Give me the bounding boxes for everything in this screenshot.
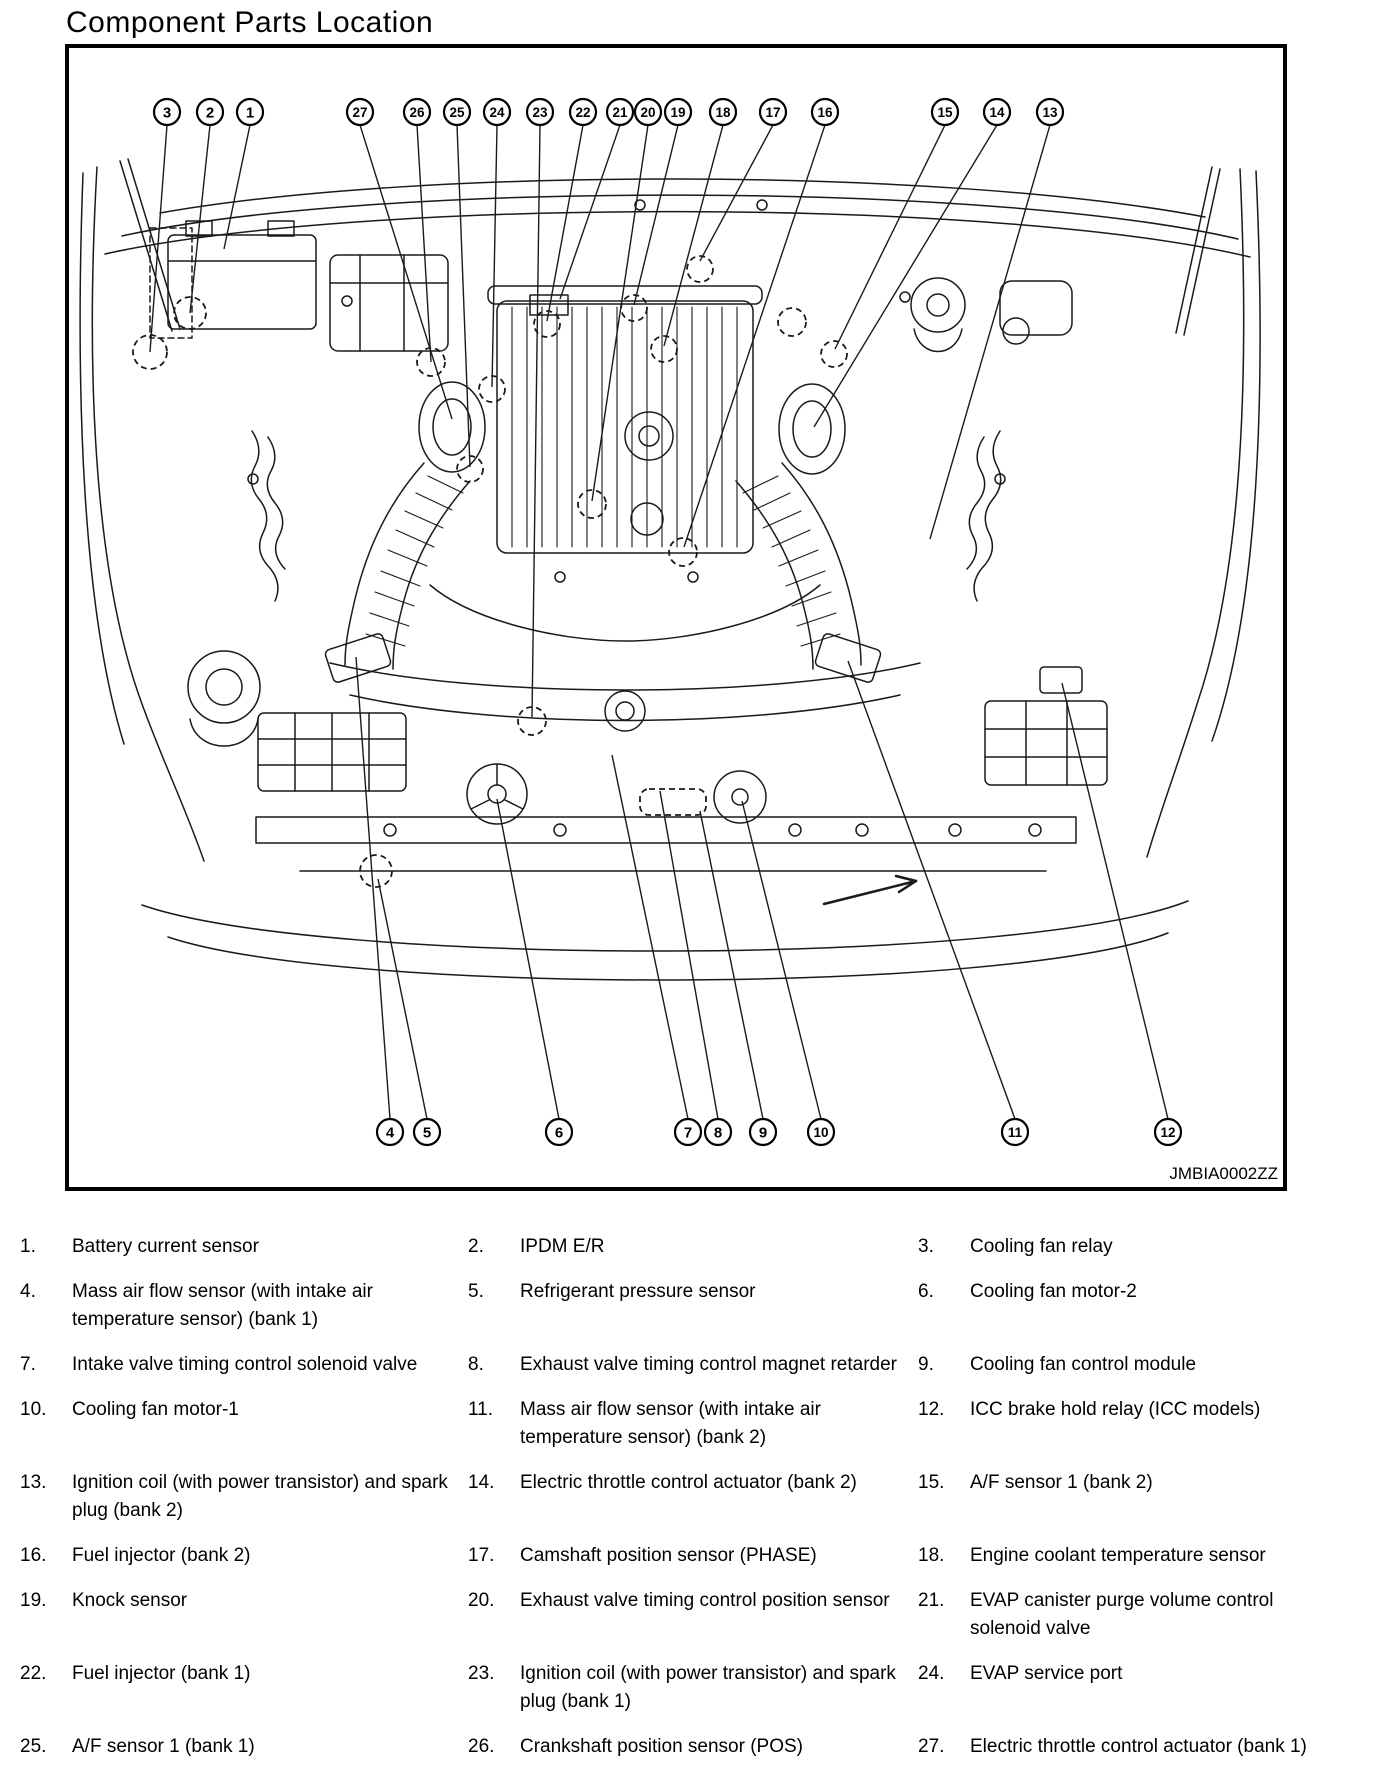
callout-9: 9 — [750, 1119, 776, 1145]
leader-line-1 — [224, 125, 250, 249]
callout-21: 21 — [607, 99, 633, 125]
legend-item-number: 1. — [20, 1233, 72, 1261]
svg-text:1: 1 — [246, 104, 254, 121]
legend-item-1: 1.Battery current sensor — [20, 1233, 468, 1261]
legend-item-label: Crankshaft position sensor (POS) — [520, 1733, 904, 1761]
leader-line-25 — [457, 125, 470, 467]
callout-1: 1 — [237, 99, 263, 125]
legend-item-22: 22.Fuel injector (bank 1) — [20, 1660, 468, 1716]
callout-20: 20 — [635, 99, 661, 125]
legend-item-number: 15. — [918, 1469, 970, 1497]
svg-text:20: 20 — [640, 105, 655, 120]
callout-27: 27 — [347, 99, 373, 125]
legend-item-14: 14.Electric throttle control actuator (b… — [468, 1469, 918, 1525]
legend-item-number: 9. — [918, 1351, 970, 1379]
callout-8: 8 — [705, 1119, 731, 1145]
legend-item-label: Refrigerant pressure sensor — [520, 1278, 904, 1306]
callout-15: 15 — [932, 99, 958, 125]
svg-text:9: 9 — [759, 1124, 767, 1141]
callout-19: 19 — [665, 99, 691, 125]
figure-code: JMBIA0002ZZ — [1169, 1164, 1278, 1183]
legend-item-number: 6. — [918, 1278, 970, 1306]
leader-line-16 — [684, 125, 825, 547]
svg-text:3: 3 — [163, 104, 171, 121]
svg-text:13: 13 — [1042, 105, 1058, 120]
svg-text:15: 15 — [937, 105, 953, 120]
legend-item-2: 2.IPDM E/R — [468, 1233, 918, 1261]
legend-item-number: 8. — [468, 1351, 520, 1379]
legend-item-number: 26. — [468, 1733, 520, 1761]
legend-item-number: 27. — [918, 1733, 970, 1761]
legend-item-16: 16.Fuel injector (bank 2) — [20, 1542, 468, 1570]
legend-item-18: 18.Engine coolant temperature sensor — [918, 1542, 1356, 1570]
engine-bay-diagram: 3212726252423222120191817161514134567891… — [65, 44, 1287, 1191]
svg-text:23: 23 — [532, 105, 548, 120]
callout-18: 18 — [710, 99, 736, 125]
callout-markers: 3212726252423222120191817161514134567891… — [154, 99, 1181, 1145]
callout-6: 6 — [546, 1119, 572, 1145]
legend-item-label: IPDM E/R — [520, 1233, 904, 1261]
legend-item-label: Cooling fan motor-1 — [72, 1396, 454, 1424]
legend-item-23: 23.Ignition coil (with power transistor)… — [468, 1660, 918, 1716]
callout-7: 7 — [675, 1119, 701, 1145]
legend-item-number: 25. — [20, 1733, 72, 1761]
leader-line-2 — [190, 125, 210, 313]
legend-item-label: Ignition coil (with power transistor) an… — [72, 1469, 454, 1525]
svg-text:25: 25 — [449, 105, 465, 120]
svg-text:8: 8 — [714, 1124, 722, 1141]
callout-11: 11 — [1002, 1119, 1028, 1145]
legend-item-21: 21.EVAP canister purge volume control so… — [918, 1587, 1356, 1643]
leader-line-26 — [417, 125, 431, 362]
callout-24: 24 — [484, 99, 510, 125]
callout-4: 4 — [377, 1119, 403, 1145]
leader-line-19 — [634, 125, 678, 305]
legend-item-number: 11. — [468, 1396, 520, 1424]
svg-text:26: 26 — [409, 105, 425, 120]
legend-item-6: 6.Cooling fan motor-2 — [918, 1278, 1356, 1334]
legend-item-number: 16. — [20, 1542, 72, 1570]
legend-item-label: Knock sensor — [72, 1587, 454, 1615]
svg-text:6: 6 — [555, 1124, 563, 1141]
callout-5: 5 — [414, 1119, 440, 1145]
svg-text:22: 22 — [575, 105, 590, 120]
legend-item-13: 13.Ignition coil (with power transistor)… — [20, 1469, 468, 1525]
leader-line-4 — [356, 657, 390, 1119]
legend-item-15: 15.A/F sensor 1 (bank 2) — [918, 1469, 1356, 1525]
callout-2: 2 — [197, 99, 223, 125]
legend-item-number: 5. — [468, 1278, 520, 1306]
legend-item-number: 24. — [918, 1660, 970, 1688]
engine-line-art — [80, 159, 1260, 980]
svg-text:5: 5 — [423, 1124, 431, 1141]
callout-25: 25 — [444, 99, 470, 125]
svg-text:18: 18 — [715, 105, 731, 120]
legend-item-number: 7. — [20, 1351, 72, 1379]
legend-item-label: Battery current sensor — [72, 1233, 454, 1261]
svg-text:19: 19 — [670, 105, 685, 120]
legend-item-number: 4. — [20, 1278, 72, 1306]
svg-text:12: 12 — [1160, 1125, 1175, 1140]
callout-17: 17 — [760, 99, 786, 125]
figure-border — [67, 46, 1285, 1189]
legend-item-27: 27.Electric throttle control actuator (b… — [918, 1733, 1356, 1761]
legend-item-number: 17. — [468, 1542, 520, 1570]
component-markers — [133, 256, 847, 887]
svg-text:11: 11 — [1008, 1125, 1023, 1140]
legend-item-number: 3. — [918, 1233, 970, 1261]
svg-text:10: 10 — [813, 1125, 828, 1140]
legend-item-number: 20. — [468, 1587, 520, 1615]
legend-item-number: 21. — [918, 1587, 970, 1615]
legend-item-9: 9.Cooling fan control module — [918, 1351, 1356, 1379]
legend-item-label: Mass air flow sensor (with intake air te… — [72, 1278, 454, 1334]
leader-line-27 — [360, 125, 452, 419]
legend-item-20: 20.Exhaust valve timing control position… — [468, 1587, 918, 1643]
legend-item-label: Cooling fan control module — [970, 1351, 1342, 1379]
legend-item-24: 24.EVAP service port — [918, 1660, 1356, 1716]
legend-item-label: A/F sensor 1 (bank 1) — [72, 1733, 454, 1761]
leader-line-14 — [814, 125, 997, 427]
svg-text:21: 21 — [612, 105, 628, 120]
legend-item-label: Fuel injector (bank 2) — [72, 1542, 454, 1570]
legend-item-25: 25.A/F sensor 1 (bank 1) — [20, 1733, 468, 1761]
legend-item-number: 19. — [20, 1587, 72, 1615]
legend-item-label: Cooling fan relay — [970, 1233, 1342, 1261]
svg-text:27: 27 — [352, 105, 367, 120]
legend-item-number: 22. — [20, 1660, 72, 1688]
svg-text:2: 2 — [206, 104, 214, 121]
callout-leader-lines — [150, 125, 1168, 1119]
legend-item-number: 14. — [468, 1469, 520, 1497]
callout-26: 26 — [404, 99, 430, 125]
legend-item-label: Intake valve timing control solenoid val… — [72, 1351, 454, 1379]
legend-item-label: EVAP canister purge volume control solen… — [970, 1587, 1342, 1643]
legend-item-label: EVAP service port — [970, 1660, 1342, 1688]
legend-item-label: Exhaust valve timing control magnet reta… — [520, 1351, 904, 1379]
legend-item-4: 4.Mass air flow sensor (with intake air … — [20, 1278, 468, 1334]
leader-line-6 — [497, 799, 559, 1119]
callout-14: 14 — [984, 99, 1010, 125]
leader-line-17 — [700, 125, 773, 261]
legend-item-8: 8.Exhaust valve timing control magnet re… — [468, 1351, 918, 1379]
legend-item-10: 10.Cooling fan motor-1 — [20, 1396, 468, 1452]
legend-item-number: 18. — [918, 1542, 970, 1570]
legend-item-number: 23. — [468, 1660, 520, 1688]
legend-item-label: Engine coolant temperature sensor — [970, 1542, 1342, 1570]
legend-item-12: 12.ICC brake hold relay (ICC models) — [918, 1396, 1356, 1452]
component-location-figure: 3212726252423222120191817161514134567891… — [65, 44, 1287, 1191]
legend-item-number: 13. — [20, 1469, 72, 1497]
legend-item-label: Mass air flow sensor (with intake air te… — [520, 1396, 904, 1452]
leader-line-5 — [378, 879, 427, 1119]
legend-item-label: Electric throttle control actuator (bank… — [520, 1469, 904, 1497]
legend-item-number: 2. — [468, 1233, 520, 1261]
legend-item-19: 19.Knock sensor — [20, 1587, 468, 1643]
svg-text:16: 16 — [817, 105, 833, 120]
callout-13: 13 — [1037, 99, 1063, 125]
legend-item-11: 11.Mass air flow sensor (with intake air… — [468, 1396, 918, 1452]
callout-12: 12 — [1155, 1119, 1181, 1145]
leader-line-7 — [612, 755, 688, 1119]
callout-22: 22 — [570, 99, 596, 125]
page-title: Component Parts Location — [66, 4, 1376, 42]
legend-item-label: Cooling fan motor-2 — [970, 1278, 1342, 1306]
legend-item-number: 10. — [20, 1396, 72, 1424]
svg-text:24: 24 — [489, 105, 505, 120]
legend-item-17: 17.Camshaft position sensor (PHASE) — [468, 1542, 918, 1570]
legend-item-label: Ignition coil (with power transistor) an… — [520, 1660, 904, 1716]
callout-16: 16 — [812, 99, 838, 125]
svg-text:14: 14 — [989, 105, 1005, 120]
legend-item-7: 7.Intake valve timing control solenoid v… — [20, 1351, 468, 1379]
component-legend: 1.Battery current sensor2.IPDM E/R3.Cool… — [20, 1233, 1360, 1761]
legend-item-label: A/F sensor 1 (bank 2) — [970, 1469, 1342, 1497]
callout-3: 3 — [154, 99, 180, 125]
legend-item-label: ICC brake hold relay (ICC models) — [970, 1396, 1342, 1424]
svg-text:7: 7 — [684, 1124, 692, 1141]
svg-text:17: 17 — [765, 105, 780, 120]
legend-item-label: Fuel injector (bank 1) — [72, 1660, 454, 1688]
legend-item-5: 5.Refrigerant pressure sensor — [468, 1278, 918, 1334]
leader-line-12 — [1062, 683, 1168, 1119]
leader-line-8 — [660, 791, 718, 1119]
callout-10: 10 — [808, 1119, 834, 1145]
leader-line-22 — [547, 125, 583, 321]
legend-item-label: Electric throttle control actuator (bank… — [970, 1733, 1342, 1761]
legend-item-3: 3.Cooling fan relay — [918, 1233, 1356, 1261]
legend-item-number: 12. — [918, 1396, 970, 1424]
svg-text:4: 4 — [386, 1124, 395, 1141]
callout-23: 23 — [527, 99, 553, 125]
legend-item-26: 26.Crankshaft position sensor (POS) — [468, 1733, 918, 1761]
legend-item-label: Camshaft position sensor (PHASE) — [520, 1542, 904, 1570]
legend-item-label: Exhaust valve timing control position se… — [520, 1587, 904, 1615]
